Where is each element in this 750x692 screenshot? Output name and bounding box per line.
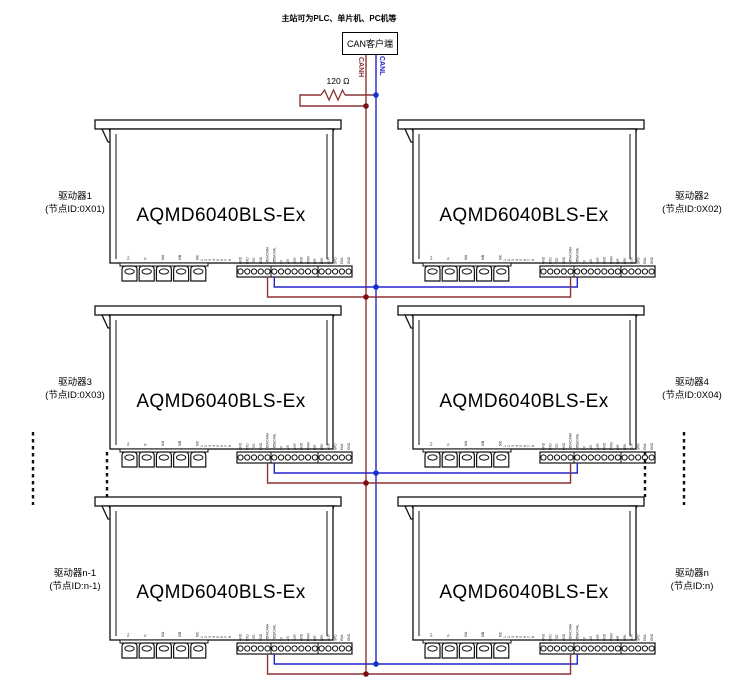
signal-pin-label: ALM <box>327 634 331 641</box>
power-pin-label: V- <box>447 257 451 260</box>
termination-resistor-label: 120 Ω <box>323 76 353 86</box>
power-terminal-hole <box>480 646 489 651</box>
signal-pin-label: 485A/CANH <box>266 246 270 264</box>
signal-pin-label: GND <box>603 442 607 450</box>
signal-pin-label: RXD <box>245 443 249 450</box>
driver-node-id: (节点ID:n) <box>636 580 748 593</box>
signal-pin-label: SPD <box>636 443 640 450</box>
signal-terminal <box>278 646 283 651</box>
driver-caption-n: 驱动器n (节点ID:n) <box>636 567 748 593</box>
power-pin-label: V- <box>144 443 148 446</box>
signal-pin-label: GND <box>259 442 263 450</box>
signal-pin-label: PWM <box>609 256 613 264</box>
signal-terminal <box>339 455 344 460</box>
signal-pin-label: SVR <box>293 634 297 641</box>
signal-pin-label: GND <box>542 633 546 641</box>
signal-pin-label: SVR <box>596 257 600 264</box>
signal-pin-label: SPD <box>333 634 337 641</box>
power-terminal-hole <box>445 455 454 460</box>
driver-unit-4: V+V-MAMBMC12345678GNDRXDTXDGND485A/CANH4… <box>398 306 655 467</box>
driver-name: 驱动器n-1 <box>15 567 135 580</box>
signal-pin-label: SVR <box>596 634 600 641</box>
signal-terminal <box>285 269 290 274</box>
signal-terminal <box>609 269 614 274</box>
signal-terminal <box>642 646 647 651</box>
signal-terminal <box>541 269 546 274</box>
signal-pin-label: SVR <box>596 443 600 450</box>
master-note-text: 主站可为PLC、单片机、PC机等 <box>258 13 420 24</box>
signal-pin-label: DIR <box>313 444 317 450</box>
signal-terminal <box>292 646 297 651</box>
signal-pin-label: ENA <box>340 257 344 264</box>
driver-flange <box>398 306 644 315</box>
signal-terminal <box>622 269 627 274</box>
power-pin-label: V+ <box>430 633 434 637</box>
power-pin-label: V+ <box>127 256 131 260</box>
canl-junction-dot <box>373 92 379 98</box>
signal-pin-label: GND <box>239 633 243 641</box>
signal-terminal <box>649 269 654 274</box>
signal-pin-label: PWM <box>306 442 310 450</box>
signal-terminal <box>649 455 654 460</box>
signal-terminal <box>326 455 331 460</box>
power-terminal-hole <box>480 269 489 274</box>
driver-flange <box>95 497 341 506</box>
power-terminal-hole <box>462 455 471 460</box>
power-pin-label: MC <box>498 440 502 446</box>
canh-junction-dot <box>363 480 369 486</box>
signal-terminal <box>575 269 580 274</box>
power-terminal-hole <box>177 646 186 651</box>
power-pin-label: V+ <box>127 442 131 446</box>
signal-pin-label: SPD <box>333 443 337 450</box>
signal-terminal <box>595 646 600 651</box>
signal-terminal <box>602 455 607 460</box>
signal-pin-label: 485A/CANH <box>569 623 573 641</box>
signal-pin-label: 485B/CANL <box>273 247 277 264</box>
signal-pin-label: GND <box>259 256 263 264</box>
signal-terminal <box>312 455 317 460</box>
signal-pin-label: 485A/CANH <box>569 246 573 264</box>
signal-terminal <box>299 646 304 651</box>
driver-model-label: AQMD6040BLS-Ex <box>419 582 629 604</box>
signal-terminal <box>554 269 559 274</box>
driver-node-id: (节点ID:0X03) <box>15 389 135 402</box>
signal-terminal <box>238 455 243 460</box>
signal-terminal <box>541 646 546 651</box>
signal-pin-label: GND <box>300 633 304 641</box>
driver-caption-3: 驱动器3 (节点ID:0X03) <box>15 376 135 402</box>
power-pin-label: MB <box>481 631 485 637</box>
signal-terminal <box>615 269 620 274</box>
signal-pin-label: TXD <box>252 257 256 264</box>
signal-pin-label: SVR <box>293 443 297 450</box>
signal-pin-label: 485B/CANL <box>273 624 277 641</box>
signal-pin-label: GND <box>542 256 546 264</box>
signal-terminal <box>292 455 297 460</box>
signal-pin-label: RXD <box>245 257 249 264</box>
signal-pin-label: PWM <box>609 633 613 641</box>
power-terminal-hole <box>142 646 151 651</box>
signal-terminal <box>333 269 338 274</box>
signal-pin-label: PWM <box>609 442 613 450</box>
signal-pin-label: TXD <box>555 443 559 450</box>
signal-terminal <box>326 269 331 274</box>
driver-name: 驱动器4 <box>636 376 748 389</box>
signal-pin-label: ALM <box>327 443 331 450</box>
driver-body <box>413 315 636 449</box>
signal-terminal <box>636 269 641 274</box>
power-pin-label: MA <box>161 440 165 446</box>
power-pin-label: MA <box>161 254 165 260</box>
driver-model-label: AQMD6040BLS-Ex <box>116 582 326 604</box>
signal-pin-label: RXD <box>548 443 552 450</box>
signal-pin-label: ALM <box>630 257 634 264</box>
signal-terminal <box>588 269 593 274</box>
signal-terminal <box>238 269 243 274</box>
signal-terminal <box>568 646 573 651</box>
signal-pin-label: ALM <box>630 634 634 641</box>
signal-pin-label: AVI <box>286 445 290 450</box>
canl-junction-dot <box>373 661 379 667</box>
signal-pin-label: ENA <box>340 443 344 450</box>
signal-terminal <box>548 455 553 460</box>
signal-pin-label: AVI <box>286 259 290 264</box>
signal-terminal <box>339 646 344 651</box>
signal-terminal <box>595 455 600 460</box>
driver-caption-2: 驱动器2 (节点ID:0X02) <box>636 190 748 216</box>
signal-pin-label: GND <box>300 442 304 450</box>
signal-pin-label: PWM <box>306 256 310 264</box>
signal-terminal <box>636 646 641 651</box>
signal-terminal <box>306 455 311 460</box>
signal-pin-label: DIR <box>313 258 317 264</box>
power-terminal-hole <box>194 269 203 274</box>
signal-pin-label: GND <box>562 256 566 264</box>
signal-pin-label: GND <box>603 256 607 264</box>
driver-flange <box>95 120 341 129</box>
signal-pin-label: BRK <box>320 634 324 641</box>
signal-pin-label: AVI <box>286 636 290 641</box>
driver-body <box>110 129 333 263</box>
signal-terminal <box>265 269 270 274</box>
signal-pin-label: ENA <box>340 634 344 641</box>
driver-caption-n-1: 驱动器n-1 (节点ID:n-1) <box>15 567 135 593</box>
signal-pin-label: GND <box>542 442 546 450</box>
signal-terminal <box>251 269 256 274</box>
signal-terminal <box>333 646 338 651</box>
signal-terminal <box>299 455 304 460</box>
signal-terminal <box>622 455 627 460</box>
signal-terminal <box>319 455 324 460</box>
signal-terminal <box>602 269 607 274</box>
power-pin-label: V- <box>144 634 148 637</box>
canl-junction-dot <box>373 284 379 290</box>
power-pin-label: MB <box>481 254 485 260</box>
signal-terminal <box>642 269 647 274</box>
signal-terminal <box>581 269 586 274</box>
signal-terminal <box>278 455 283 460</box>
signal-pin-label: TXD <box>252 443 256 450</box>
signal-pin-label: GND <box>347 442 351 450</box>
signal-pin-label: 485A/CANH <box>569 432 573 450</box>
signal-terminal <box>568 269 573 274</box>
signal-pin-label: RXD <box>548 257 552 264</box>
signal-pin-label: BRK <box>623 634 627 641</box>
signal-terminal <box>615 455 620 460</box>
aux-pin-label: 8 <box>228 636 232 638</box>
signal-terminal <box>292 269 297 274</box>
driver-body <box>110 315 333 449</box>
aux-pin-label: 8 <box>531 636 535 638</box>
signal-terminal <box>588 455 593 460</box>
signal-pin-label: TXD <box>252 634 256 641</box>
power-terminal-hole <box>428 455 437 460</box>
driver-name: 驱动器2 <box>636 190 748 203</box>
power-terminal-hole <box>462 269 471 274</box>
signal-pin-label: BRK <box>623 443 627 450</box>
signal-pin-label: 485B/CANL <box>576 433 580 450</box>
signal-terminal <box>581 455 586 460</box>
signal-terminal <box>575 455 580 460</box>
signal-pin-label: GND <box>650 256 654 264</box>
power-terminal-hole <box>177 455 186 460</box>
signal-pin-label: GND <box>347 256 351 264</box>
signal-terminal <box>272 269 277 274</box>
signal-terminal <box>602 646 607 651</box>
power-terminal-hole <box>497 269 506 274</box>
signal-terminal <box>245 455 250 460</box>
signal-terminal <box>319 269 324 274</box>
aux-pin-label: 8 <box>531 445 535 447</box>
driver-body <box>413 506 636 640</box>
signal-terminal <box>299 269 304 274</box>
resistor-lead-left <box>300 95 366 106</box>
signal-terminal <box>629 646 634 651</box>
signal-pin-label: DIR <box>616 444 620 450</box>
signal-terminal <box>285 646 290 651</box>
power-pin-label: MB <box>178 254 182 260</box>
signal-pin-label: SPD <box>636 634 640 641</box>
driver-name: 驱动器n <box>636 567 748 580</box>
signal-pin-label: ENA <box>643 257 647 264</box>
canh-junction-dot <box>363 103 369 109</box>
driver-unit-2: V+V-MAMBMC12345678GNDRXDTXDGND485A/CANH4… <box>398 120 655 281</box>
can-master-box: CAN客户端 <box>342 32 398 55</box>
power-pin-label: MB <box>481 440 485 446</box>
power-terminal-hole <box>125 455 134 460</box>
signal-terminal <box>251 455 256 460</box>
power-pin-label: MA <box>161 631 165 637</box>
signal-terminal <box>595 269 600 274</box>
signal-terminal <box>238 646 243 651</box>
signal-terminal <box>312 646 317 651</box>
signal-terminal <box>346 646 351 651</box>
signal-pin-label: ENA <box>643 634 647 641</box>
power-pin-label: V+ <box>430 442 434 446</box>
signal-pin-label: GND <box>347 633 351 641</box>
signal-pin-label: TXD <box>555 634 559 641</box>
signal-pin-label: GND <box>603 633 607 641</box>
signal-terminal <box>312 269 317 274</box>
signal-pin-label: PWM <box>306 633 310 641</box>
signal-terminal <box>561 646 566 651</box>
power-pin-label: V- <box>144 257 148 260</box>
power-pin-label: MC <box>195 254 199 260</box>
power-pin-label: MB <box>178 631 182 637</box>
power-pin-label: V- <box>447 443 451 446</box>
canl-junction-dot <box>373 470 379 476</box>
signal-terminal <box>561 269 566 274</box>
signal-pin-label: GND <box>239 256 243 264</box>
canh-wire-label: CANH <box>357 57 364 77</box>
signal-terminal <box>278 269 283 274</box>
signal-pin-label: ALM <box>630 443 634 450</box>
power-pin-label: MC <box>195 631 199 637</box>
termination-resistor <box>321 90 345 100</box>
signal-pin-label: BRK <box>320 257 324 264</box>
driver-flange <box>398 120 644 129</box>
signal-terminal <box>319 646 324 651</box>
signal-terminal <box>251 646 256 651</box>
signal-terminal <box>561 455 566 460</box>
signal-terminal <box>615 646 620 651</box>
signal-terminal <box>346 455 351 460</box>
signal-terminal <box>265 646 270 651</box>
power-pin-label: V+ <box>127 633 131 637</box>
signal-terminal <box>636 455 641 460</box>
driver-body <box>413 129 636 263</box>
signal-pin-label: 485B/CANL <box>576 247 580 264</box>
driver-model-label: AQMD6040BLS-Ex <box>116 391 326 413</box>
power-pin-label: MC <box>195 440 199 446</box>
signal-pin-label: DIR <box>616 258 620 264</box>
signal-terminal <box>554 455 559 460</box>
signal-pin-label: GND <box>650 633 654 641</box>
power-pin-label: MA <box>464 631 468 637</box>
driver-model-label: AQMD6040BLS-Ex <box>419 205 629 227</box>
signal-terminal <box>258 646 263 651</box>
power-terminal-hole <box>428 646 437 651</box>
driver-flange <box>95 306 341 315</box>
power-terminal-hole <box>194 646 203 651</box>
signal-pin-label: 485A/CANH <box>266 623 270 641</box>
signal-pin-label: TXD <box>555 257 559 264</box>
power-pin-label: MC <box>498 254 502 260</box>
signal-pin-label: AVI <box>589 259 593 264</box>
canl-wire-label: CANL <box>378 56 385 75</box>
driver-model-label: AQMD6040BLS-Ex <box>116 205 326 227</box>
signal-terminal <box>272 455 277 460</box>
signal-pin-label: 485B/CANL <box>273 433 277 450</box>
signal-pin-label: ENA <box>643 443 647 450</box>
signal-pin-label: BRK <box>623 257 627 264</box>
signal-pin-label: GND <box>650 442 654 450</box>
signal-terminal <box>333 455 338 460</box>
signal-pin-label: DIR <box>313 635 317 641</box>
aux-pin-label: 8 <box>228 259 232 261</box>
signal-terminal <box>548 646 553 651</box>
signal-terminal <box>575 646 580 651</box>
driver-name: 驱动器3 <box>15 376 135 389</box>
driver-node-id: (节点ID:0X04) <box>636 389 748 402</box>
driver-body <box>110 506 333 640</box>
power-terminal-hole <box>497 455 506 460</box>
power-terminal-hole <box>159 269 168 274</box>
driver-node-id: (节点ID:0X01) <box>15 203 135 216</box>
driver-name: 驱动器1 <box>15 190 135 203</box>
signal-terminal <box>258 455 263 460</box>
signal-pin-label: 485A/CANH <box>266 432 270 450</box>
signal-pin-label: DIR <box>616 635 620 641</box>
driver-caption-1: 驱动器1 (节点ID:0X01) <box>15 190 135 216</box>
signal-pin-label: RXD <box>548 634 552 641</box>
power-terminal-hole <box>428 269 437 274</box>
signal-pin-label: RXD <box>245 634 249 641</box>
signal-terminal <box>568 455 573 460</box>
signal-terminal <box>285 455 290 460</box>
driver-caption-4: 驱动器4 (节点ID:0X04) <box>636 376 748 402</box>
driver-model-label: AQMD6040BLS-Ex <box>419 391 629 413</box>
signal-pin-label: SPD <box>636 257 640 264</box>
canh-junction-dot <box>363 671 369 677</box>
power-terminal-hole <box>445 646 454 651</box>
signal-pin-label: GND <box>239 442 243 450</box>
driver-unit-6: V+V-MAMBMC12345678GNDRXDTXDGND485A/CANH4… <box>398 497 655 658</box>
signal-pin-label: GND <box>300 256 304 264</box>
power-pin-label: V+ <box>430 256 434 260</box>
signal-pin-label: GND <box>259 633 263 641</box>
canh-junction-dot <box>363 294 369 300</box>
signal-pin-label: GND <box>562 633 566 641</box>
power-terminal-hole <box>445 269 454 274</box>
signal-pin-label: AVI <box>589 445 593 450</box>
power-terminal-hole <box>480 455 489 460</box>
power-terminal-hole <box>462 646 471 651</box>
signal-terminal <box>581 646 586 651</box>
signal-terminal <box>629 455 634 460</box>
signal-terminal <box>245 269 250 274</box>
power-pin-label: V- <box>447 634 451 637</box>
signal-terminal <box>609 646 614 651</box>
wiring-diagram-page: V+V-MAMBMC12345678GNDRXDTXDGND485A/CANH4… <box>0 0 750 692</box>
signal-pin-label: SPD <box>333 257 337 264</box>
signal-terminal <box>272 646 277 651</box>
signal-terminal <box>629 269 634 274</box>
power-terminal-hole <box>142 269 151 274</box>
power-pin-label: MC <box>498 631 502 637</box>
driver-flange <box>398 497 644 506</box>
can-master-label: CAN客户端 <box>347 37 393 50</box>
power-terminal-hole <box>125 269 134 274</box>
signal-terminal <box>609 455 614 460</box>
power-terminal-hole <box>177 269 186 274</box>
driver-node-id: (节点ID:n-1) <box>15 580 135 593</box>
power-pin-label: MA <box>464 254 468 260</box>
signal-terminal <box>258 269 263 274</box>
power-terminal-hole <box>142 455 151 460</box>
signal-terminal <box>306 646 311 651</box>
signal-terminal <box>346 269 351 274</box>
power-terminal-hole <box>194 455 203 460</box>
signal-terminal <box>245 646 250 651</box>
signal-pin-label: AVI <box>589 636 593 641</box>
signal-terminal <box>265 455 270 460</box>
aux-pin-label: 8 <box>531 259 535 261</box>
signal-terminal <box>541 455 546 460</box>
signal-pin-label: GND <box>562 442 566 450</box>
power-terminal-hole <box>497 646 506 651</box>
